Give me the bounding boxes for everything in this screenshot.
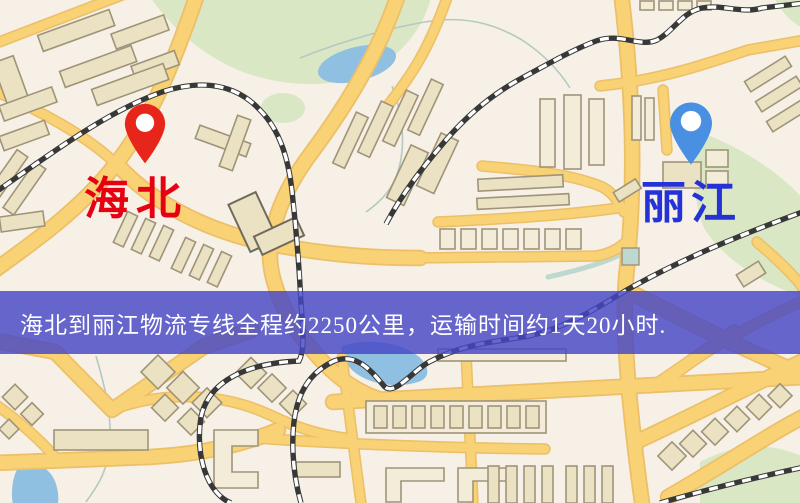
map-canvas	[0, 0, 800, 503]
destination-pin-icon[interactable]	[667, 101, 715, 167]
destination-label: 丽江	[641, 181, 741, 226]
origin-pin-icon[interactable]	[122, 102, 168, 166]
origin-label: 海北	[84, 177, 188, 222]
logistics-route-map: 海北到丽江物流专线全程约2250公里，运输时间约1天20小时. 海北 丽江	[0, 0, 800, 503]
route-info-banner: 海北到丽江物流专线全程约2250公里，运输时间约1天20小时.	[0, 291, 800, 354]
route-info-text: 海北到丽江物流专线全程约2250公里，运输时间约1天20小时.	[20, 306, 666, 340]
